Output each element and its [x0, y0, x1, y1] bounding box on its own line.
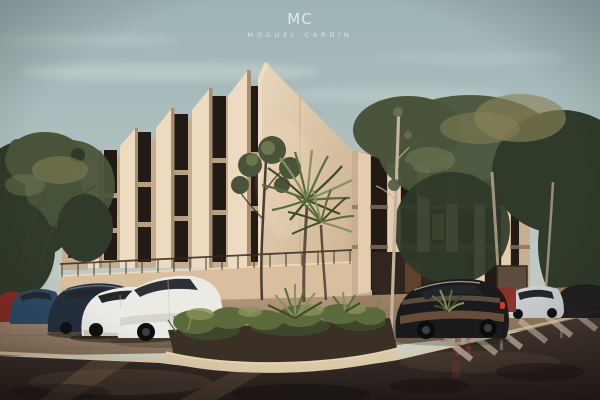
- logo-monogram: MC: [287, 10, 312, 28]
- logo-name: MOGUEL CARDIN: [248, 31, 353, 39]
- vignette: [0, 0, 600, 400]
- rendered-scene: MC MOGUEL CARDIN: [0, 0, 600, 400]
- architectural-rendering-canvas: MC MOGUEL CARDIN: [0, 0, 600, 400]
